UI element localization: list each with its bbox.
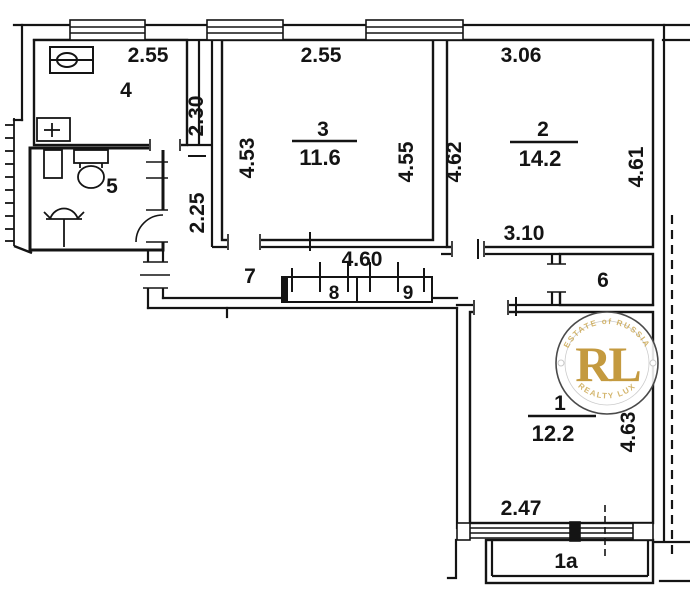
window-room3 <box>207 20 283 40</box>
watermark: ESTATE of RUSSIA REALTY LUX RL <box>556 312 658 414</box>
dim-room2-top: 3.06 <box>501 44 542 67</box>
dim-room2-right: 4.61 <box>625 146 648 187</box>
room-9-number: 9 <box>403 283 414 304</box>
dim-room2-left: 4.62 <box>443 142 466 183</box>
dim-hall-left: 2.25 <box>186 192 209 233</box>
dim-room3-top: 2.55 <box>301 44 342 67</box>
room-boxes <box>30 40 653 583</box>
room-6-number: 6 <box>597 269 609 292</box>
room-8-number: 8 <box>329 283 340 304</box>
dim-room2-bottom: 3.10 <box>504 222 545 245</box>
window-room2 <box>366 20 463 40</box>
dim-kitchen-depth: 2.30 <box>185 96 208 137</box>
room-1-number: 1 <box>554 392 566 415</box>
dim-kitchen-width: 2.55 <box>128 44 169 67</box>
room-7-number: 7 <box>244 265 256 288</box>
room-2 <box>447 40 653 247</box>
watermark-dot-left <box>558 360 564 366</box>
room-5-number: 5 <box>106 175 118 198</box>
room-3-area: 11.6 <box>299 145 341 170</box>
dim-room3-right: 4.55 <box>395 141 418 182</box>
dim-room1-bottom: 2.47 <box>501 497 542 520</box>
room-3-number: 3 <box>317 118 329 141</box>
floor-plan: 2.55 4 2.30 2.55 4.53 4.55 3 11.6 3.06 4… <box>0 0 690 600</box>
staircase-hatching <box>5 118 32 253</box>
window-kitchen <box>70 20 145 40</box>
room-2-area: 14.2 <box>519 146 562 171</box>
watermark-letters: RL <box>575 336 640 392</box>
balcony-number: 1a <box>554 550 578 573</box>
room-1-area: 12.2 <box>532 421 575 446</box>
dim-room3-left: 4.53 <box>236 138 259 179</box>
watermark-dot-right <box>650 360 656 366</box>
dim-hall-top: 4.60 <box>342 248 383 271</box>
dim-room1-right: 4.63 <box>617 412 640 453</box>
room-4-number: 4 <box>120 79 132 102</box>
room-2-number: 2 <box>537 118 549 141</box>
